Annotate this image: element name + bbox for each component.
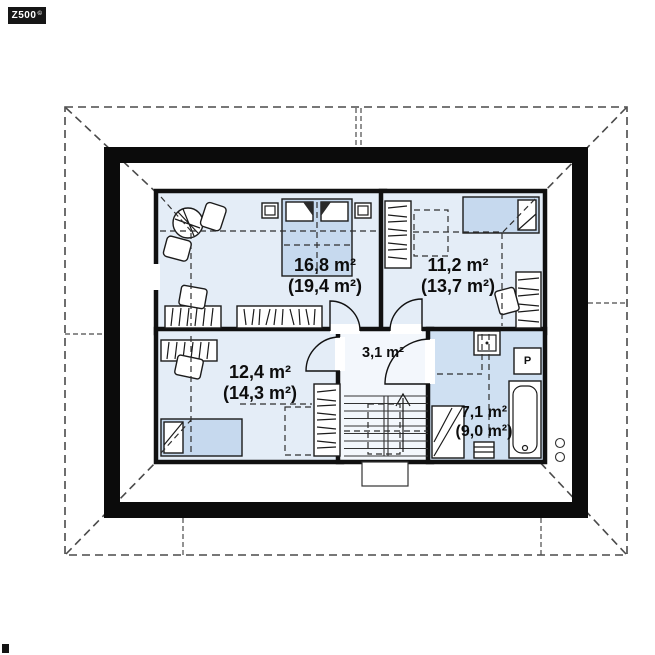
area-gross: (14,3 m²) xyxy=(180,383,340,404)
washing-machine-label: P xyxy=(514,348,541,374)
nightstand xyxy=(262,203,278,218)
brand-watermark: Z500© xyxy=(8,7,46,24)
room-label-bathroom: 7,1 m² (9,0 m²) xyxy=(404,403,564,441)
radiator xyxy=(474,442,494,458)
area-gross: (13,7 m²) xyxy=(378,276,538,297)
vent-pipes xyxy=(556,439,565,462)
page-corner-mark xyxy=(2,644,9,653)
pillow xyxy=(164,422,183,453)
desk-chair xyxy=(178,285,207,309)
room-label-bedroom-left: 12,4 m² (14,3 m²) xyxy=(180,362,340,404)
plan-drawing xyxy=(0,0,655,655)
area-gross: (9,0 m²) xyxy=(404,422,564,441)
area-net: 11,2 m² xyxy=(378,255,538,276)
pillow xyxy=(518,200,536,230)
area-net: 12,4 m² xyxy=(180,362,340,383)
area-net: 7,1 m² xyxy=(404,403,564,422)
brand-text: Z500 xyxy=(12,10,37,21)
room-label-hallway: 3,1 m² xyxy=(343,345,423,362)
brand-symbol: © xyxy=(37,11,42,17)
stair-landing xyxy=(362,462,408,486)
nightstand xyxy=(355,203,371,218)
room-label-bedroom-right: 11,2 m² (13,7 m²) xyxy=(378,255,538,297)
attic-floor-plan: Z500© 16,8 m² (19,4 m²) 11,2 m² (13,7 m²… xyxy=(0,0,655,655)
area-net: 3,1 m² xyxy=(343,345,423,362)
